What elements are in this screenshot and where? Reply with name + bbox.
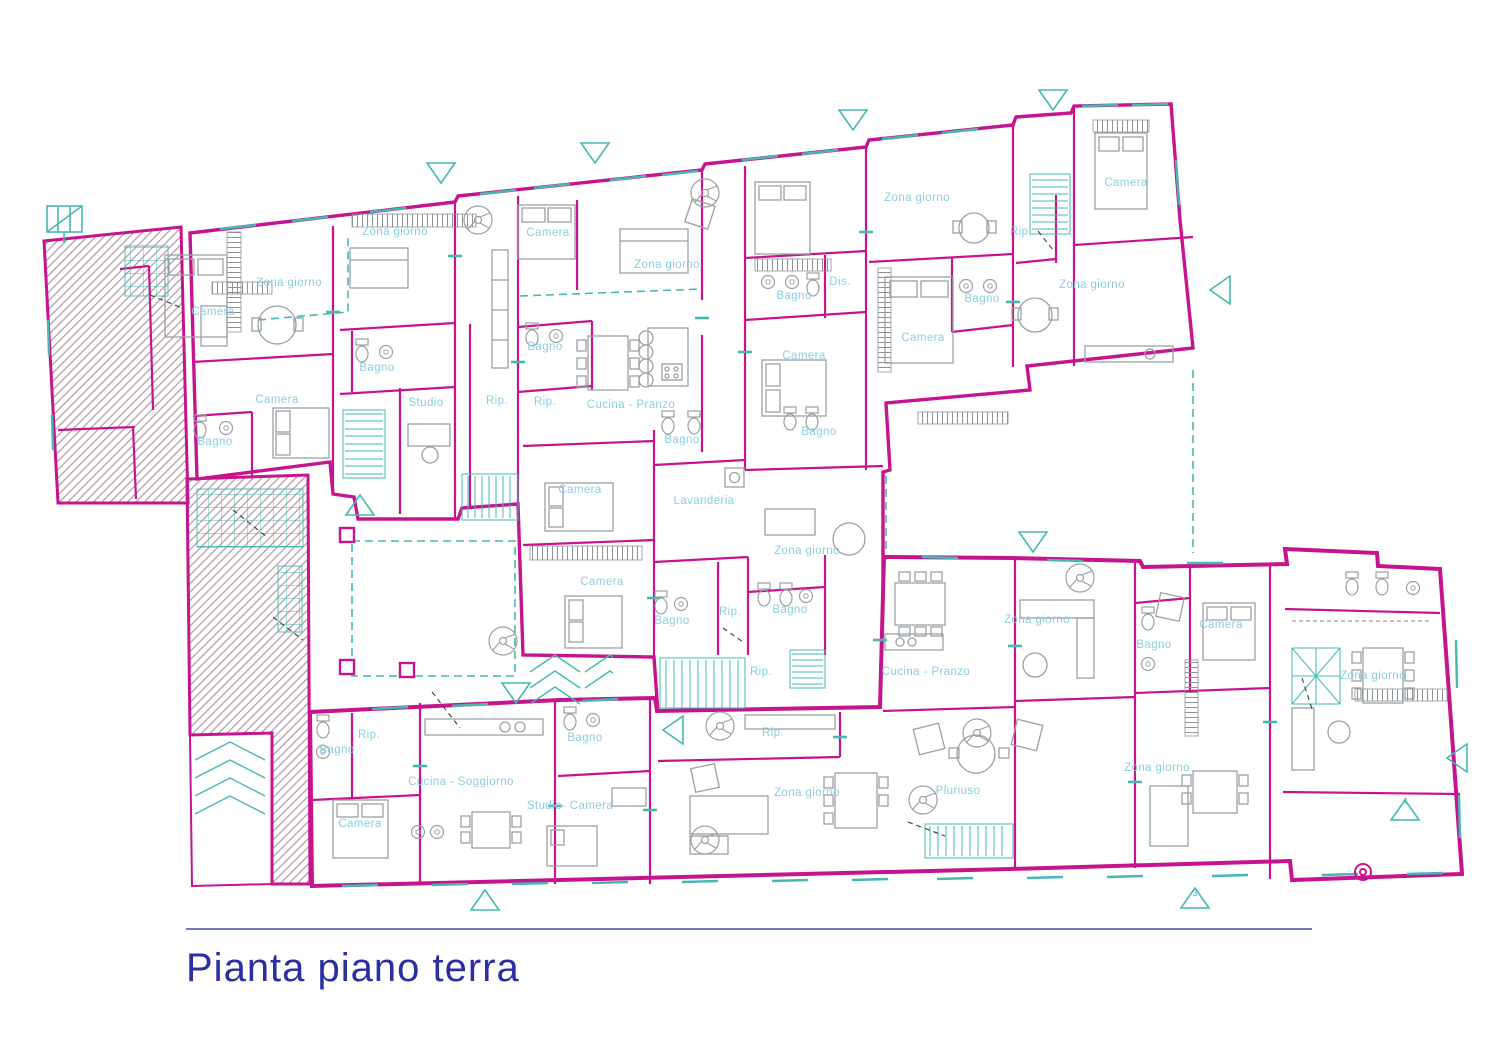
section-marker-number: 3 bbox=[1192, 888, 1197, 898]
room-label: Studio- Camera bbox=[527, 800, 613, 812]
room-label: Zona giorno bbox=[884, 192, 950, 204]
room-label: Cucina - Soggiorno bbox=[408, 776, 514, 788]
room-label: Lavanderia bbox=[674, 495, 735, 507]
room-label: Bagno bbox=[1136, 639, 1171, 651]
room-label: Bagno bbox=[654, 615, 689, 627]
room-label: Rip. bbox=[719, 606, 741, 618]
room-label: Bagno bbox=[801, 426, 836, 438]
room-label: Studio bbox=[408, 397, 443, 409]
room-label: Bagno bbox=[527, 341, 562, 353]
floor-plan-drawing: CameraZona giornoCameraBagnoBagnoStudioR… bbox=[0, 0, 1500, 1061]
room-label: Zona giorno bbox=[774, 787, 840, 799]
room-label: Dis. bbox=[829, 276, 850, 288]
room-label: Zona giorno bbox=[1004, 614, 1070, 626]
room-label: Camera bbox=[191, 306, 235, 318]
room-label: Camera bbox=[580, 576, 624, 588]
drawing-sheet: CameraZona giornoCameraBagnoBagnoStudioR… bbox=[0, 0, 1500, 1061]
room-label: Zona giorno bbox=[774, 545, 840, 557]
room-label: Bagno bbox=[664, 434, 699, 446]
room-label: Camera bbox=[901, 332, 945, 344]
room-label: Rip. bbox=[1010, 226, 1032, 238]
room-label: Bagno bbox=[772, 604, 807, 616]
room-label: Bagno bbox=[964, 293, 999, 305]
room-label: Bagno bbox=[319, 744, 354, 756]
room-label: Pluriuso bbox=[936, 785, 981, 797]
room-label: Zona giorno bbox=[362, 226, 428, 238]
section-marker-number: 4 bbox=[1402, 796, 1407, 806]
room-label: Zona giorno bbox=[256, 277, 322, 289]
room-label: Rip. bbox=[762, 727, 784, 739]
page-title: Pianta piano terra bbox=[186, 946, 520, 990]
room-label: Bagno bbox=[776, 290, 811, 302]
room-label: Bagno bbox=[567, 732, 602, 744]
room-label: Zona giorno bbox=[1059, 279, 1125, 291]
room-label: Camera bbox=[1104, 177, 1148, 189]
room-label: Bagno bbox=[359, 362, 394, 374]
room-label: Camera bbox=[255, 394, 299, 406]
room-label: Camera bbox=[558, 484, 602, 496]
room-label: Camera bbox=[526, 227, 570, 239]
room-label: Camera bbox=[782, 350, 826, 362]
room-label: Rip. bbox=[486, 395, 508, 407]
room-label: Rip. bbox=[358, 729, 380, 741]
room-label: Camera bbox=[338, 818, 382, 830]
room-label: Rip. bbox=[534, 396, 556, 408]
room-label: Cucina - Pranzo bbox=[587, 399, 675, 411]
room-label: Zona giorno bbox=[1340, 670, 1406, 682]
lower-band-outline bbox=[310, 549, 1462, 886]
room-label: Camera bbox=[1199, 619, 1243, 631]
room-label: Zona giorno bbox=[1124, 762, 1190, 774]
room-label: Zona giorno bbox=[634, 259, 700, 271]
room-label: Bagno bbox=[197, 436, 232, 448]
room-label: Cucina - Pranzo bbox=[882, 666, 970, 678]
room-label: Rip. bbox=[750, 666, 772, 678]
